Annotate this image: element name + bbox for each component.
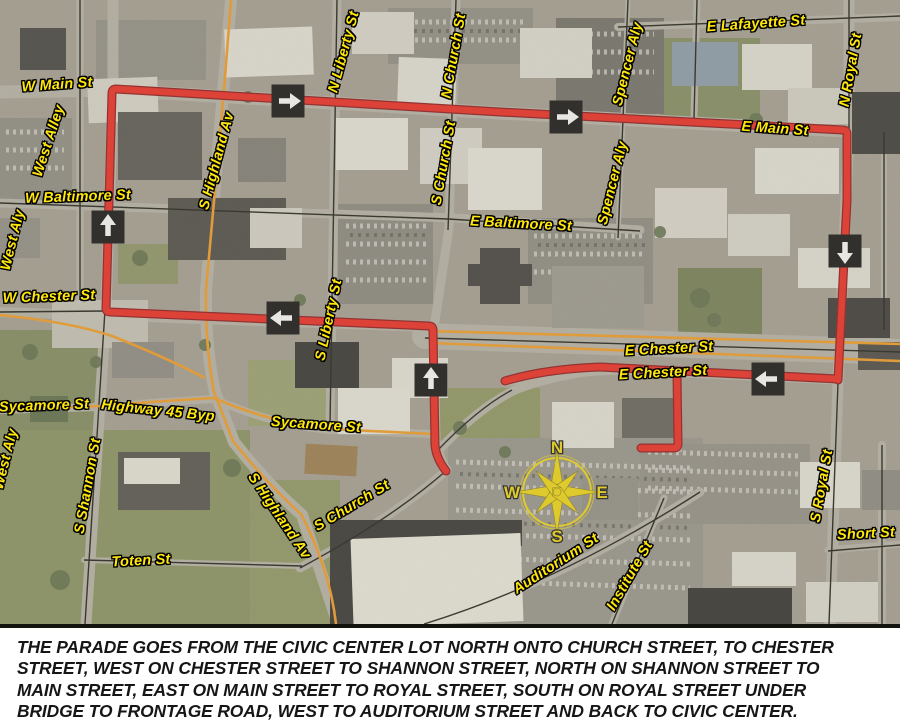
photo-grain [0,0,900,624]
aerial-map: N W E S W Main St West Alley W Baltimore… [0,0,900,628]
route-description-line-2: STREET, WEST ON CHESTER STREET TO SHANNO… [17,658,900,679]
route-description-line-1: THE PARADE GOES FROM THE CIVIC CENTER LO… [17,637,900,658]
route-description-line-4: BRIDGE TO FRONTAGE ROAD, WEST TO AUDITOR… [17,701,900,720]
route-description-line-3: MAIN STREET, EAST ON MAIN STREET TO ROYA… [17,680,900,701]
route-description: THE PARADE GOES FROM THE CIVIC CENTER LO… [0,628,900,720]
aerial-photo: N W E S [0,0,900,624]
parade-route-map-page: N W E S W Main St West Alley W Baltimore… [0,0,900,720]
